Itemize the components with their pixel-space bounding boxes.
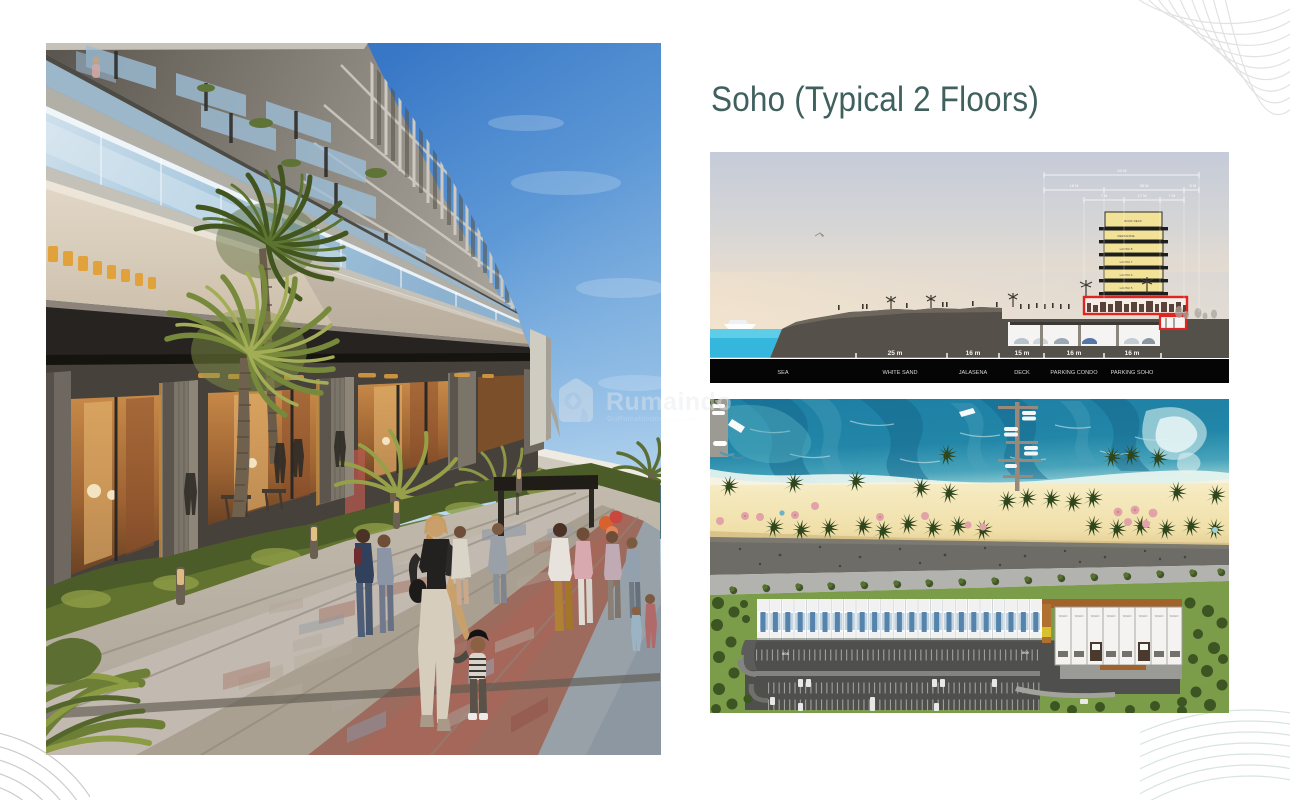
svg-text:WHITE SAND: WHITE SAND — [882, 370, 917, 376]
svg-text:ROOF DECK: ROOF DECK — [1124, 219, 1142, 223]
svg-text:17 M: 17 M — [1138, 193, 1147, 198]
svg-text:16 m: 16 m — [966, 350, 981, 357]
svg-text:SOHO: SOHO — [1123, 614, 1133, 618]
svg-text:LANTAI 7: LANTAI 7 — [1120, 260, 1133, 264]
svg-text:25 m: 25 m — [888, 350, 903, 357]
svg-text:LANTAI 6: LANTAI 6 — [1120, 273, 1133, 277]
svg-text:009: 009 — [1022, 650, 1029, 655]
svg-text:DECK: DECK — [1014, 370, 1030, 376]
svg-text:6 M: 6 M — [1190, 183, 1197, 188]
svg-text:SOHO: SOHO — [1091, 614, 1101, 618]
svg-text:SOHO: SOHO — [1155, 614, 1165, 618]
svg-text:16 m: 16 m — [1067, 350, 1082, 357]
svg-text:GoRumahIndonesia.com: GoRumahIndonesia.com — [607, 414, 696, 423]
svg-text:15 m: 15 m — [1015, 350, 1030, 357]
svg-text:PARKING CONDO: PARKING CONDO — [1050, 370, 1098, 376]
svg-text:PARKING SOHO: PARKING SOHO — [1111, 370, 1154, 376]
svg-text:LANTAI 8: LANTAI 8 — [1120, 247, 1133, 251]
svg-text:62 M: 62 M — [1118, 168, 1127, 173]
svg-text:SOHO: SOHO — [1075, 614, 1085, 618]
svg-text:SOHO: SOHO — [1170, 614, 1180, 618]
svg-text:SOHO: SOHO — [1139, 614, 1149, 618]
svg-text:7 M: 7 M — [1169, 193, 1176, 198]
svg-text:Rumaindo: Rumaindo — [606, 388, 732, 416]
svg-text:SOHO: SOHO — [1107, 614, 1117, 618]
svg-text:JALASENA: JALASENA — [959, 370, 988, 376]
svg-text:38 M: 38 M — [1140, 183, 1149, 188]
svg-text:16 m: 16 m — [1125, 350, 1140, 357]
svg-text:18 M: 18 M — [1070, 183, 1079, 188]
svg-text:SOHO: SOHO — [1059, 614, 1069, 618]
svg-text:MEZZANINE: MEZZANINE — [1117, 234, 1134, 238]
svg-text:LANTAI 5: LANTAI 5 — [1120, 286, 1133, 290]
svg-text:7 M: 7 M — [1101, 193, 1108, 198]
svg-text:008: 008 — [782, 651, 789, 656]
